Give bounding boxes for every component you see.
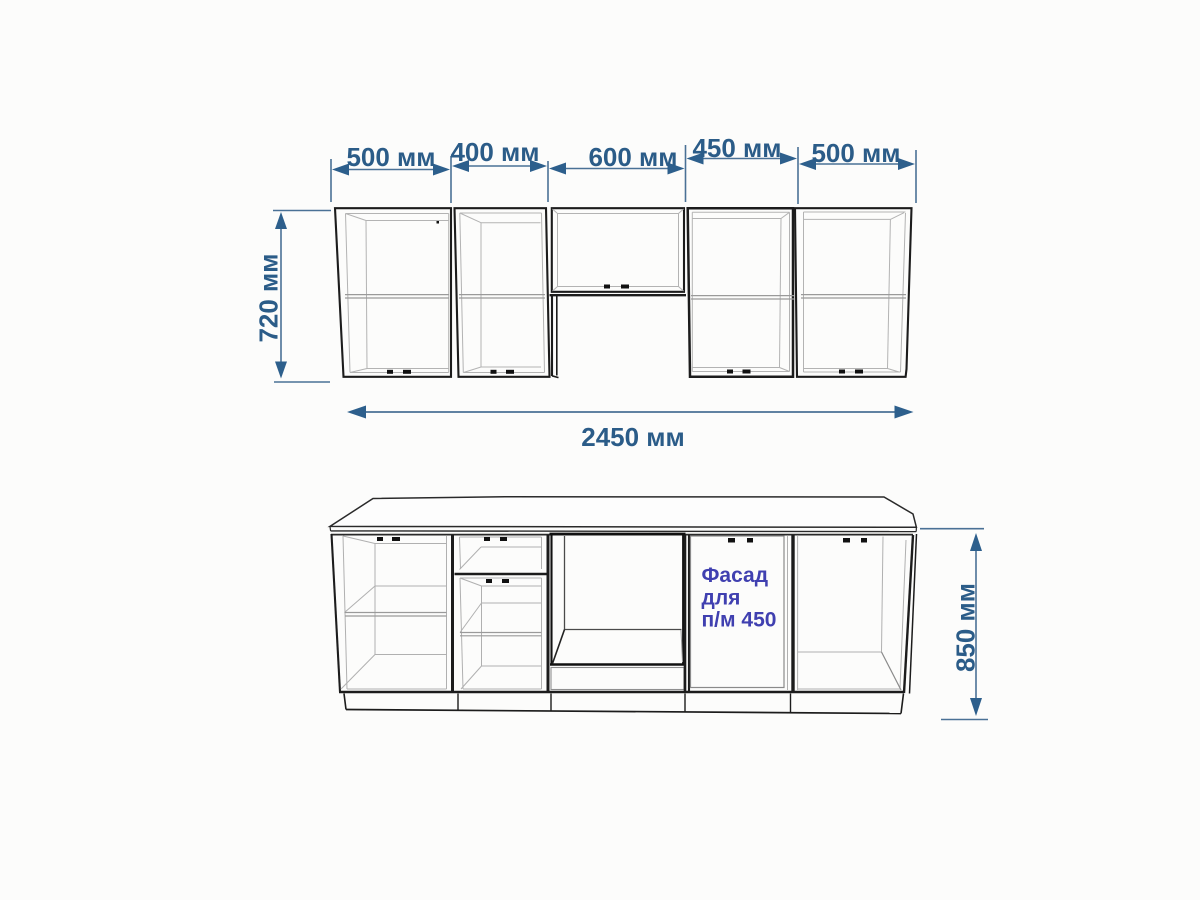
svg-text:2450 мм: 2450 мм: [581, 422, 685, 452]
svg-text:400 мм: 400 мм: [450, 137, 539, 167]
svg-text:720 мм: 720 мм: [254, 253, 284, 342]
svg-text:500 мм: 500 мм: [811, 138, 900, 168]
svg-text:450 мм: 450 мм: [692, 133, 781, 163]
svg-text:п/м 450: п/м 450: [702, 609, 777, 632]
svg-text:для: для: [702, 586, 741, 609]
svg-text:850 мм: 850 мм: [951, 583, 981, 672]
svg-text:500 мм: 500 мм: [346, 142, 435, 172]
svg-text:Фасад: Фасад: [702, 564, 769, 587]
svg-text:600 мм: 600 мм: [588, 142, 677, 172]
